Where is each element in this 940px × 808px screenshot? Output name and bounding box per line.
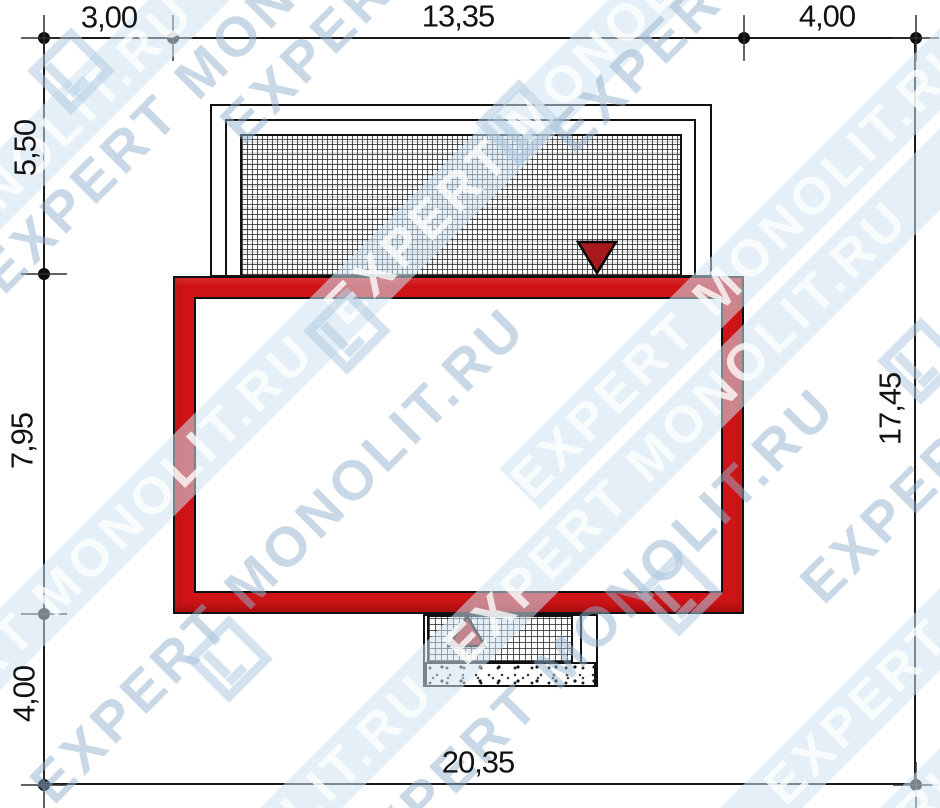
dim-label-bottom-total: 20,35: [442, 747, 515, 778]
dim-label-left-bottom: 4,00: [9, 666, 40, 722]
dimension-tick: [915, 762, 917, 808]
dimension-tick: [21, 613, 67, 615]
dim-label-left-top: 5,50: [10, 120, 41, 176]
dim-label-top-middle: 13,35: [422, 1, 495, 32]
dimension-tick: [21, 37, 67, 39]
dim-label-left-middle: 7,95: [7, 413, 38, 469]
dimension-tick: [743, 15, 745, 61]
site-plan-canvas: 3,00 13,35 4,00 5,50 7,95 4,00 17,45 20,…: [0, 0, 940, 808]
dimension-tick: [172, 15, 174, 61]
dimension-tick: [893, 37, 939, 39]
dim-label-top-right: 4,00: [799, 1, 855, 32]
plot-boundary: [43, 37, 916, 785]
dimension-tick: [43, 762, 45, 808]
dim-label-right-total: 17,45: [875, 373, 906, 446]
dim-label-top-left: 3,00: [81, 2, 137, 33]
dimension-tick: [21, 273, 67, 275]
